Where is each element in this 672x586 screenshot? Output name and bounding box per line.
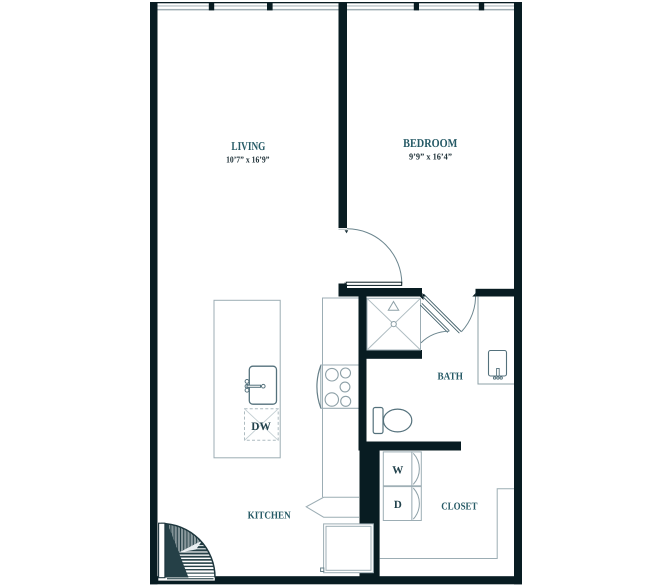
svg-text:10’7” x 16’9”: 10’7” x 16’9”: [226, 155, 270, 165]
svg-text:W: W: [392, 465, 403, 477]
svg-text:CLOSET: CLOSET: [441, 502, 477, 513]
svg-text:BEDROOM: BEDROOM: [403, 136, 457, 150]
svg-text:KITCHEN: KITCHEN: [248, 511, 291, 522]
svg-text:LIVING: LIVING: [231, 139, 265, 153]
svg-text:9’9” x 16’4”: 9’9” x 16’4”: [409, 151, 452, 161]
svg-text:D: D: [394, 499, 402, 511]
svg-text:DW: DW: [251, 421, 271, 433]
svg-text:BATH: BATH: [438, 372, 463, 383]
